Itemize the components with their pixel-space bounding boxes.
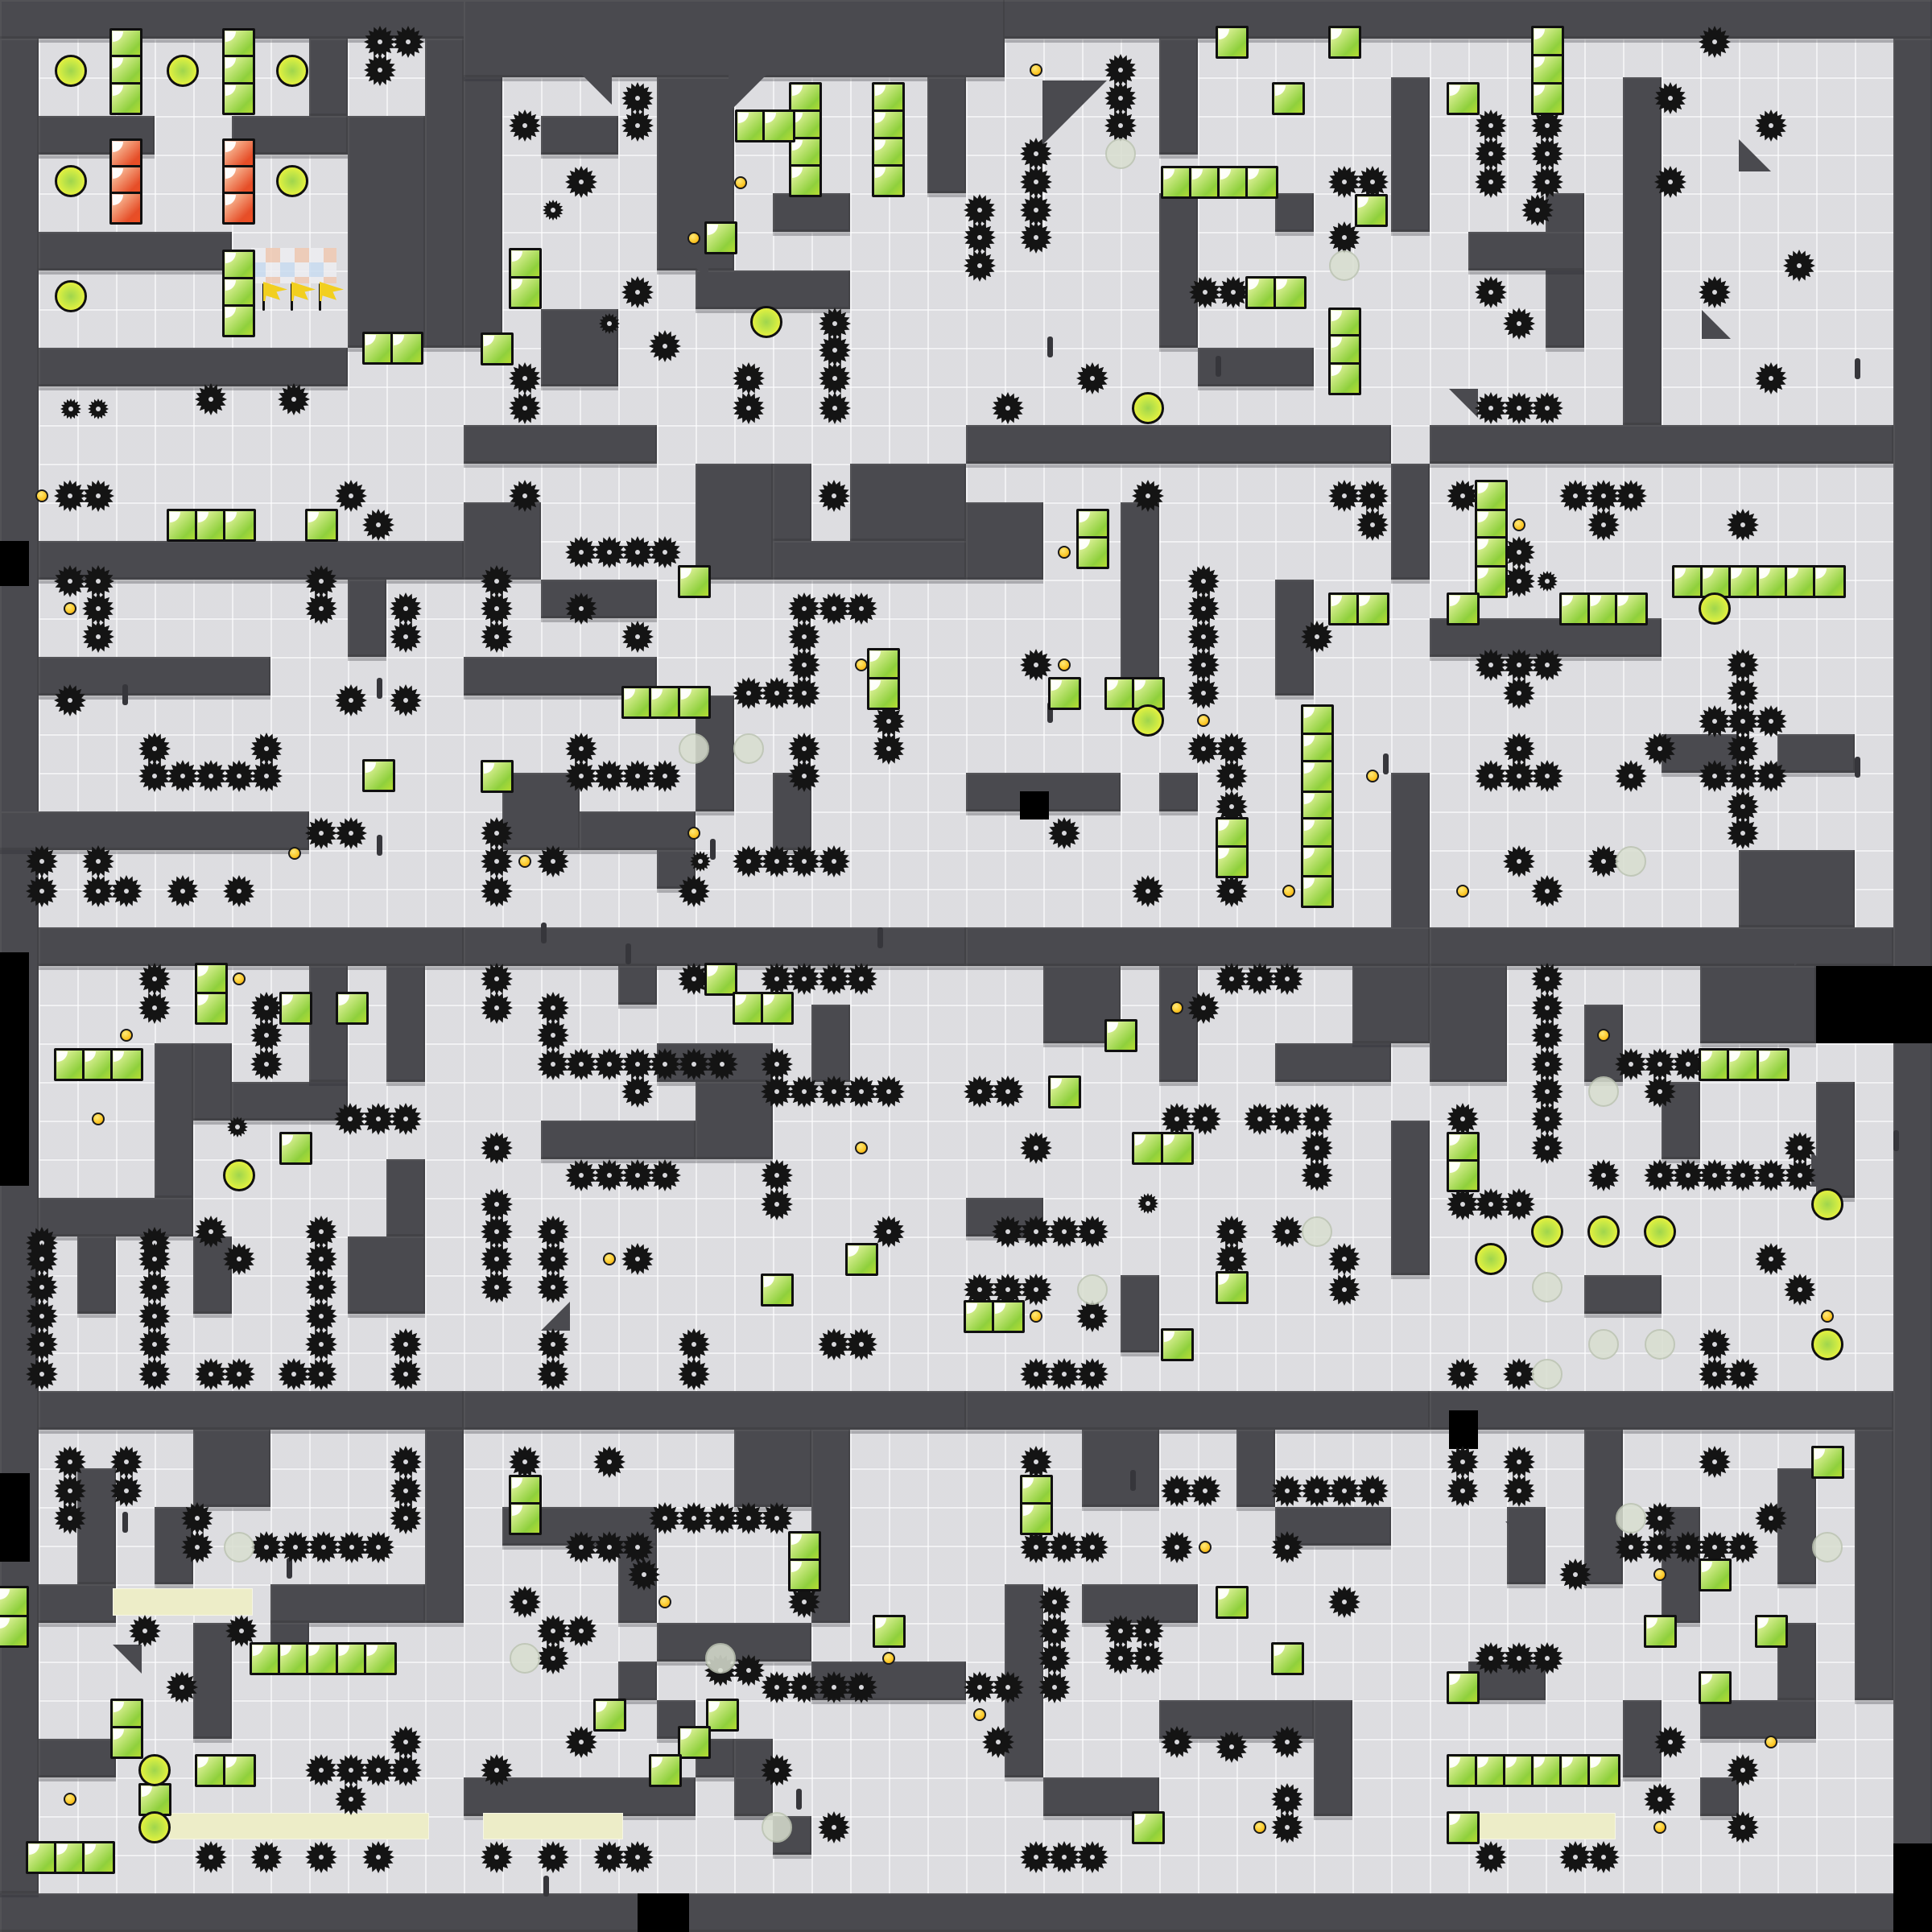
small-coin (1765, 1736, 1777, 1748)
coin (1644, 1216, 1676, 1248)
saw-hazard-icon (593, 1159, 625, 1191)
wall-block (1623, 77, 1662, 425)
saw-hazard-icon (593, 1446, 625, 1478)
small-coin (1513, 518, 1525, 531)
green-block (761, 992, 794, 1025)
saw-hazard-icon (1328, 166, 1360, 198)
green-block (0, 1615, 29, 1648)
wall-block (1546, 193, 1584, 348)
saw-hazard-icon (481, 963, 513, 995)
green-block (1132, 1132, 1165, 1165)
wall-block (966, 425, 1391, 464)
small-coin (658, 1596, 671, 1608)
saw-hazard-icon (1644, 1075, 1676, 1108)
wall-block (1159, 966, 1198, 1082)
saw-hazard-icon (621, 1531, 654, 1563)
saw-hazard-icon (1161, 1475, 1193, 1507)
saw-hazard-icon (1076, 1531, 1108, 1563)
wall-block (1391, 1121, 1430, 1275)
void-rect (638, 1893, 689, 1932)
wall-wedge (541, 1302, 570, 1331)
saw-hazard-icon (788, 760, 820, 792)
saw-hazard-icon (678, 1048, 710, 1080)
saw-hazard-icon (305, 817, 337, 849)
green-block (1328, 26, 1361, 59)
saw-hazard-icon (481, 875, 513, 907)
saw-hazard-icon (593, 1531, 625, 1563)
green-block (1447, 1811, 1480, 1844)
saw-hazard-icon (1187, 649, 1220, 681)
wall-mark (541, 923, 547, 943)
saw-hazard-icon (1328, 1475, 1360, 1507)
saw-hazard-icon (1644, 733, 1676, 765)
wall-block (193, 1043, 232, 1121)
wall-block (348, 580, 386, 657)
green-block (1447, 82, 1480, 115)
saw-hazard-icon (166, 1671, 198, 1703)
small-coin (120, 1029, 133, 1042)
green-block (362, 759, 395, 792)
saw-hazard-icon (621, 621, 654, 653)
wall-mark (796, 1789, 802, 1810)
wall-mark (122, 684, 128, 705)
small-coin (687, 827, 700, 840)
wall-block (193, 1236, 232, 1314)
wall-block (1430, 425, 1893, 464)
wall-mark (1047, 336, 1053, 357)
green-block (306, 1642, 339, 1675)
saw-hazard-icon (250, 1019, 283, 1051)
saw-hazard-icon (537, 1019, 569, 1051)
wall-block (1584, 1430, 1623, 1584)
saw-hazard-icon (1503, 392, 1535, 424)
saw-hazard-icon (1020, 1841, 1052, 1873)
saw-hazard-icon (649, 1159, 681, 1191)
green-block (873, 1615, 906, 1648)
coin (1587, 1216, 1620, 1248)
saw-hazard-icon (1132, 480, 1164, 512)
coin (167, 55, 199, 87)
saw-hazard-icon (964, 221, 996, 254)
wall-block (1468, 1662, 1546, 1700)
saw-hazard-icon (678, 875, 710, 907)
saw-hazard-icon (334, 1103, 366, 1135)
saw-hazard-icon (819, 392, 851, 424)
wall-block (386, 1159, 425, 1236)
saw-hazard-icon (1356, 480, 1389, 512)
void-rect (1893, 1843, 1932, 1932)
saw-hazard-icon (621, 276, 654, 308)
saw-hazard-icon (537, 1328, 569, 1360)
green-block (704, 221, 737, 254)
saw-hazard-icon (1020, 166, 1052, 198)
saw-hazard-icon (1020, 1358, 1052, 1390)
small-coin (288, 847, 301, 860)
coin (1132, 704, 1164, 737)
saw-hazard-icon (481, 1132, 513, 1164)
saw-hazard-icon (138, 760, 171, 792)
saw-hazard-icon (788, 1075, 820, 1108)
saw-hazard-icon (1783, 250, 1815, 282)
coin (55, 165, 87, 197)
wall-block (39, 1739, 116, 1777)
wall-wedge (1505, 1521, 1538, 1554)
saw-hazard-icon (873, 1075, 905, 1108)
saw-hazard-icon (362, 1531, 394, 1563)
wall-mark (710, 839, 716, 860)
saw-hazard-icon (565, 1726, 597, 1758)
saw-hazard-icon (1475, 1188, 1507, 1220)
green-block (1216, 845, 1249, 878)
saw-hazard-icon (1531, 1132, 1563, 1164)
saw-hazard-icon (305, 1358, 337, 1390)
saw-hazard-icon (1216, 760, 1248, 792)
wall-block (39, 232, 232, 270)
saw-hazard-icon (305, 1754, 337, 1786)
saw-hazard-icon (278, 383, 310, 415)
saw-hazard-icon (1187, 733, 1220, 765)
green-block (195, 963, 228, 996)
saw-hazard-icon (481, 817, 513, 849)
wall-mark (1383, 753, 1389, 774)
green-block (1161, 1328, 1194, 1361)
saw-hazard-icon (1531, 1642, 1563, 1674)
ghost-circle (1616, 846, 1646, 877)
small-coin (687, 232, 700, 245)
saw-hazard-icon (138, 992, 171, 1024)
saw-hazard-icon (509, 480, 541, 512)
saw-hazard-icon (1559, 480, 1591, 512)
small-coin (1653, 1568, 1666, 1581)
saw-hazard-icon (1187, 621, 1220, 653)
saw-hazard-icon (1537, 571, 1558, 592)
green-block (1811, 1446, 1844, 1479)
saw-hazard-icon (1301, 1159, 1333, 1191)
saw-hazard-icon (1187, 677, 1220, 709)
ghost-circle (1329, 250, 1360, 281)
wall-block (734, 1777, 773, 1816)
small-coin (1199, 1541, 1212, 1554)
saw-hazard-icon (1503, 536, 1535, 568)
saw-hazard-icon (1503, 760, 1535, 792)
ghost-circle (224, 1532, 254, 1563)
saw-hazard-icon (537, 1271, 569, 1303)
green-block (1216, 26, 1249, 59)
green-block (1615, 592, 1648, 625)
saw-hazard-icon (1447, 1475, 1479, 1507)
ghost-circle (1105, 138, 1136, 169)
saw-hazard-icon (565, 1159, 597, 1191)
highlight-tile (1476, 1813, 1616, 1839)
wall-block (541, 1121, 696, 1159)
saw-hazard-icon (138, 1328, 171, 1360)
ghost-circle (1616, 1503, 1646, 1534)
saw-hazard-icon (82, 621, 114, 653)
wall-mark (1855, 358, 1860, 379)
green-block (509, 276, 542, 309)
void-rect (0, 541, 29, 586)
red-block (109, 192, 142, 225)
green-block (279, 992, 312, 1025)
wall-block (309, 39, 348, 116)
saw-hazard-icon (537, 1048, 569, 1080)
wall-block (386, 966, 425, 1082)
green-block (1447, 1671, 1480, 1704)
wall-block (464, 927, 966, 966)
saw-hazard-icon (1531, 1019, 1563, 1051)
small-coin (855, 658, 868, 671)
saw-hazard-icon (1447, 1103, 1479, 1135)
saw-hazard-icon (1048, 1841, 1080, 1873)
saw-hazard-icon (1727, 1811, 1759, 1843)
saw-hazard-icon (1020, 649, 1052, 681)
coin (1811, 1188, 1843, 1220)
wall-wedge (1042, 80, 1107, 145)
wall-block (1043, 1777, 1159, 1816)
wall-block (464, 77, 502, 348)
game-board[interactable] (0, 0, 1932, 1932)
finish-checker (251, 248, 336, 283)
saw-hazard-icon (1755, 1243, 1787, 1275)
saw-hazard-icon (364, 26, 396, 58)
saw-hazard-icon (1271, 1103, 1303, 1135)
saw-hazard-icon (565, 1531, 597, 1563)
saw-hazard-icon (1755, 1159, 1787, 1191)
saw-hazard-icon (223, 1243, 255, 1275)
saw-hazard-icon (1559, 1841, 1591, 1873)
wall-wedge (531, 24, 612, 105)
saw-hazard-icon (82, 592, 114, 625)
wall-block (0, 811, 309, 850)
green-block (1757, 1048, 1790, 1081)
saw-hazard-icon (26, 1358, 58, 1390)
saw-hazard-icon (788, 963, 820, 995)
saw-hazard-icon (565, 760, 597, 792)
green-block (706, 1699, 739, 1732)
saw-hazard-icon (761, 1159, 793, 1191)
saw-hazard-icon (54, 1446, 86, 1478)
saw-hazard-icon (761, 1502, 793, 1534)
saw-hazard-icon (1503, 845, 1535, 877)
saw-hazard-icon (481, 1271, 513, 1303)
ghost-circle (1588, 1329, 1619, 1360)
green-block (1272, 82, 1305, 115)
saw-hazard-icon (1447, 1446, 1479, 1478)
saw-hazard-icon (964, 250, 996, 282)
saw-hazard-icon (593, 760, 625, 792)
saw-hazard-icon (1587, 509, 1620, 541)
ghost-circle (1532, 1359, 1563, 1389)
saw-hazard-icon (1038, 1642, 1071, 1674)
green-block (390, 332, 423, 365)
small-coin (1030, 1310, 1042, 1323)
wall-block (541, 580, 657, 618)
saw-hazard-icon (54, 1502, 86, 1534)
saw-hazard-icon (250, 760, 283, 792)
saw-hazard-icon (1475, 166, 1507, 198)
saw-hazard-icon (1755, 760, 1787, 792)
wall-block (773, 541, 966, 580)
saw-hazard-icon (1699, 1328, 1731, 1360)
saw-hazard-icon (565, 536, 597, 568)
wall-block (1430, 966, 1507, 1082)
saw-hazard-icon (649, 536, 681, 568)
saw-hazard-icon (1503, 308, 1535, 340)
wall-block (850, 464, 966, 541)
saw-hazard-icon (1038, 1671, 1071, 1703)
wall-block (39, 1391, 464, 1430)
saw-hazard-icon (788, 649, 820, 681)
saw-hazard-icon (390, 1502, 422, 1534)
saw-hazard-icon (621, 1841, 654, 1873)
saw-hazard-icon (1271, 1475, 1303, 1507)
wall-block (1275, 1043, 1391, 1082)
wall-block (1700, 1700, 1816, 1739)
wall-block (425, 39, 464, 348)
saw-hazard-icon (181, 1531, 213, 1563)
saw-hazard-icon (227, 1117, 248, 1137)
saw-hazard-icon (1020, 1531, 1052, 1563)
saw-hazard-icon (992, 392, 1024, 424)
green-block (678, 565, 711, 598)
finish-flag-icon (259, 280, 288, 312)
highlight-tile (483, 1813, 623, 1839)
green-block (788, 1558, 821, 1591)
saw-hazard-icon (1531, 963, 1563, 995)
saw-hazard-icon (537, 1841, 569, 1873)
green-block (1245, 166, 1278, 199)
saw-hazard-icon (1531, 649, 1563, 681)
saw-hazard-icon (305, 1328, 337, 1360)
ghost-circle (1645, 1329, 1675, 1360)
green-block (762, 109, 795, 142)
saw-hazard-icon (1328, 1274, 1360, 1306)
saw-hazard-icon (964, 1671, 996, 1703)
saw-hazard-icon (481, 1243, 513, 1275)
saw-hazard-icon (649, 1048, 681, 1080)
wall-block (1430, 1391, 1893, 1430)
green-block (195, 992, 228, 1025)
green-block (872, 164, 905, 197)
green-block (1813, 565, 1846, 598)
saw-hazard-icon (1531, 392, 1563, 424)
green-block (110, 1726, 143, 1759)
green-block (1274, 276, 1307, 309)
saw-hazard-icon (110, 1475, 142, 1507)
saw-hazard-icon (509, 109, 541, 142)
saw-hazard-icon (26, 1271, 58, 1303)
saw-hazard-icon (1699, 760, 1731, 792)
saw-hazard-icon (1161, 1726, 1193, 1758)
wall-mark (1216, 356, 1221, 377)
saw-hazard-icon (1216, 1243, 1248, 1275)
saw-hazard-icon (565, 1048, 597, 1080)
wall-block (1468, 232, 1584, 270)
coin (1475, 1243, 1507, 1275)
saw-hazard-icon (305, 1271, 337, 1303)
coin (223, 1159, 255, 1191)
saw-hazard-icon (1644, 1531, 1676, 1563)
saw-hazard-icon (1475, 109, 1507, 142)
saw-hazard-icon (1521, 194, 1554, 226)
saw-hazard-icon (1104, 109, 1137, 142)
saw-hazard-icon (110, 1446, 142, 1478)
wall-block (464, 1391, 966, 1430)
saw-hazard-icon (1161, 1103, 1193, 1135)
saw-hazard-icon (82, 875, 114, 907)
saw-hazard-icon (733, 677, 765, 709)
saw-hazard-icon (873, 733, 905, 765)
coin (138, 1811, 171, 1843)
green-block (789, 164, 822, 197)
small-coin (1030, 64, 1042, 76)
green-block (1475, 480, 1508, 513)
saw-hazard-icon (1447, 1358, 1479, 1390)
small-coin (973, 1708, 986, 1721)
wall-wedge (483, 515, 518, 551)
saw-hazard-icon (1755, 705, 1787, 737)
green-block (223, 1754, 256, 1787)
green-block (1301, 845, 1334, 878)
saw-hazard-icon (481, 592, 513, 625)
saw-hazard-icon (565, 592, 597, 625)
green-block (1699, 1558, 1732, 1591)
saw-hazard-icon (818, 1811, 850, 1843)
saw-hazard-icon (1132, 875, 1164, 907)
saw-hazard-icon (593, 1048, 625, 1080)
saw-hazard-icon (788, 845, 820, 877)
coin (1811, 1328, 1843, 1360)
saw-hazard-icon (1654, 82, 1686, 114)
wall-wedge (1739, 139, 1771, 171)
wall-block (580, 811, 696, 850)
saw-hazard-icon (138, 1358, 171, 1390)
wall-wedge (680, 252, 708, 280)
saw-hazard-icon (678, 1358, 710, 1390)
saw-hazard-icon (1271, 1726, 1303, 1758)
saw-hazard-icon (481, 621, 513, 653)
highlight-tile (113, 1588, 253, 1616)
finish-flag-icon (316, 280, 345, 312)
saw-hazard-icon (138, 963, 171, 995)
saw-hazard-icon (706, 1048, 738, 1080)
saw-hazard-icon (1727, 509, 1759, 541)
green-block (1475, 536, 1508, 569)
saw-hazard-icon (1503, 649, 1535, 681)
saw-hazard-icon (1132, 1642, 1164, 1674)
saw-hazard-icon (195, 1841, 227, 1873)
green-block (1020, 1502, 1053, 1535)
saw-hazard-icon (481, 845, 513, 877)
saw-hazard-icon (195, 383, 227, 415)
saw-hazard-icon (362, 509, 394, 541)
green-block (279, 1132, 312, 1165)
green-block (845, 1243, 878, 1276)
saw-hazard-icon (845, 963, 877, 995)
green-block (1328, 362, 1361, 395)
saw-hazard-icon (1161, 1531, 1193, 1563)
wall-block (1121, 1275, 1159, 1352)
saw-hazard-icon (167, 760, 199, 792)
green-block (1271, 1642, 1304, 1675)
saw-hazard-icon (1104, 54, 1137, 86)
wall-block (1082, 1430, 1159, 1507)
green-block (1104, 1019, 1137, 1052)
wall-block (425, 1430, 464, 1623)
wall-block (193, 1430, 270, 1507)
wall-block (270, 1584, 425, 1623)
wall-block (966, 502, 1043, 580)
